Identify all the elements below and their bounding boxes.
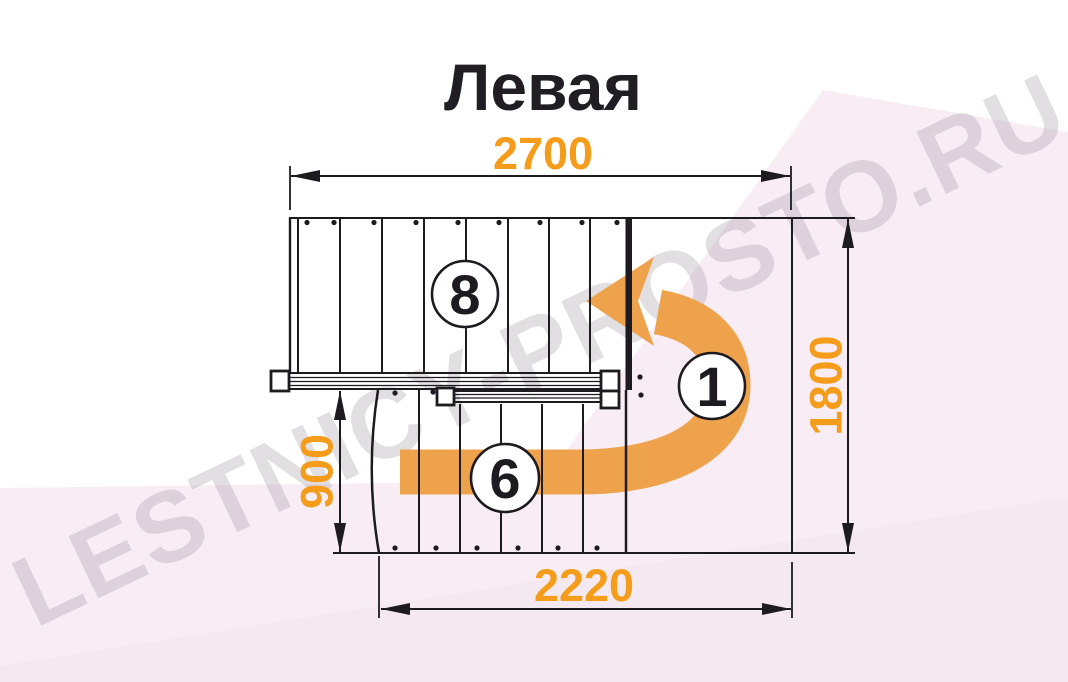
page-title: Левая xyxy=(343,54,743,120)
staircase-plan-page: LESTNICY-PROSTO.RU xyxy=(0,0,1068,682)
dimension-top-label: 2700 xyxy=(443,131,643,176)
upper-flight-step-count: 8 xyxy=(425,265,505,325)
plan-linework xyxy=(271,166,855,618)
fastener-dots-upper xyxy=(304,220,619,225)
landing-number: 1 xyxy=(672,357,752,417)
lower-flight-step-count: 6 xyxy=(465,449,545,509)
dimension-bottom-label: 2220 xyxy=(484,563,684,608)
dimension-right-label: 1800 xyxy=(804,306,849,466)
dimension-left-label: 900 xyxy=(295,392,340,552)
arrowhead xyxy=(586,257,654,346)
